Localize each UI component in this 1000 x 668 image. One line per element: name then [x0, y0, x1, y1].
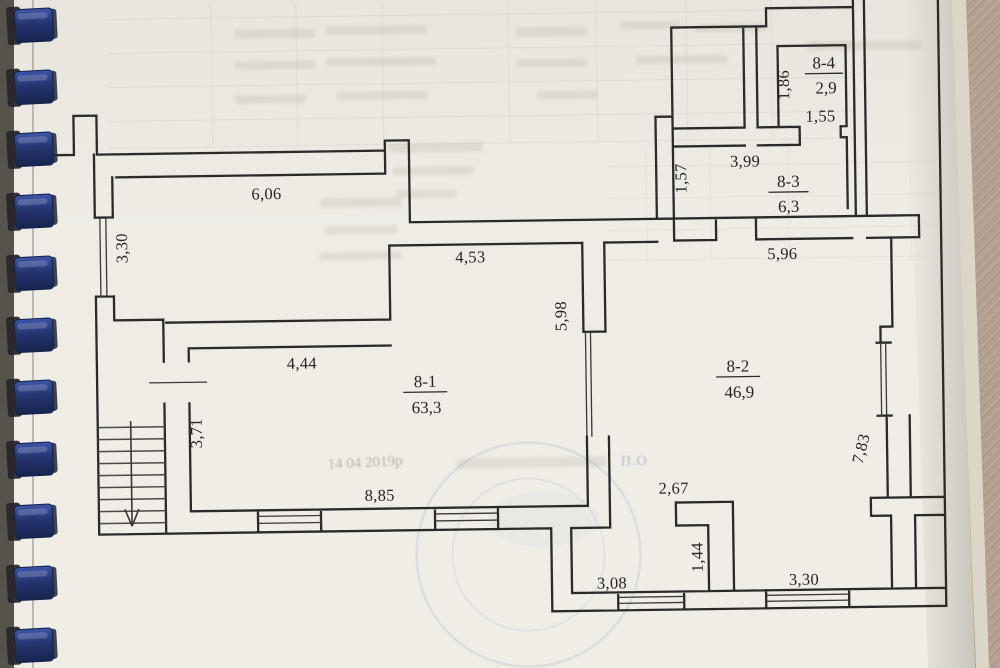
room-83-id: 8-3 — [777, 172, 800, 191]
dim-room81-bottom: 8,85 — [365, 485, 395, 504]
binding-coil — [6, 625, 58, 666]
dim-recess-width: 2,67 — [658, 478, 688, 497]
binding-coil — [6, 377, 58, 418]
room-81-id: 8-1 — [414, 372, 437, 391]
dim-divider-height: 5,98 — [551, 301, 570, 331]
dim-window-left: 3,08 — [597, 573, 627, 592]
photo-of-floor-plan-page: 14 04 2019р П.О 6,06 3,30 4,53 5,98 4,44… — [0, 0, 1000, 668]
binding-coil — [6, 439, 58, 480]
dim-room81-left: 3,71 — [187, 418, 206, 448]
dim-upper-wall: 4,53 — [455, 247, 485, 266]
dim-room83-width: 3,99 — [730, 151, 760, 170]
binding-coil — [6, 253, 58, 294]
dim-room84-height: 1,86 — [774, 70, 793, 100]
dim-window-right: 3,30 — [789, 570, 819, 589]
room-84-area: 2,9 — [815, 78, 837, 97]
room-84-id: 8-4 — [812, 53, 835, 72]
dim-hall-width: 6,06 — [251, 184, 281, 203]
bleed-mark: П.О — [621, 454, 648, 469]
binding-coil — [6, 501, 58, 542]
binding-coil — [6, 191, 58, 232]
room-82-id: 8-2 — [726, 357, 749, 376]
dim-wall-596: 5,96 — [767, 244, 797, 263]
floor-plan-sheet: 14 04 2019р П.О 6,06 3,30 4,53 5,98 4,44… — [0, 0, 1000, 668]
binding-coil — [6, 129, 58, 170]
binding-coil — [6, 563, 58, 604]
binding-coil — [6, 67, 58, 108]
dim-recess-depth: 1,44 — [687, 542, 706, 572]
dim-room81-top: 4,44 — [287, 354, 317, 373]
room-81-area: 63,3 — [411, 398, 441, 417]
binding-coil — [6, 5, 58, 46]
dim-wall-157: 1,57 — [671, 163, 690, 193]
room-82-area: 46,9 — [724, 382, 754, 401]
dim-hall-window: 3,30 — [112, 233, 131, 263]
paper-sheet — [13, 0, 975, 668]
dim-room84-door: 1,55 — [805, 106, 835, 125]
binding-coil — [6, 315, 58, 356]
room-83-area: 6,3 — [778, 197, 800, 216]
